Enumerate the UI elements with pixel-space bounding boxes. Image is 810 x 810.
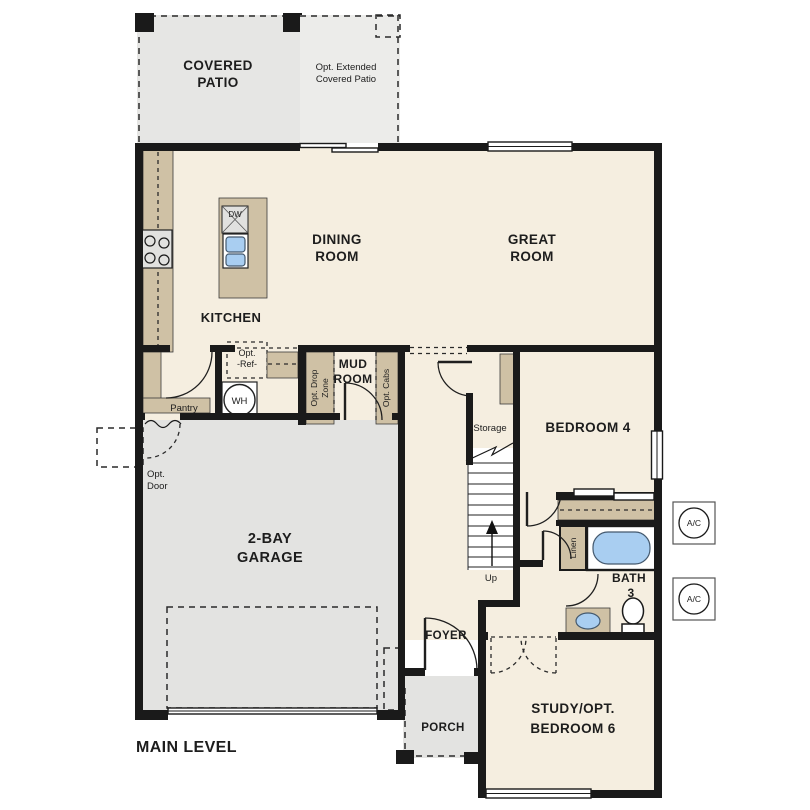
svg-text:DW: DW [228, 210, 242, 219]
svg-text:WH: WH [232, 396, 248, 407]
linen-label: Linen [568, 537, 578, 558]
garage-door [168, 708, 377, 714]
pantry-label: Pantry [170, 403, 198, 414]
storage-label: Storage [473, 423, 506, 434]
covered-patio-label: COVERED [183, 58, 253, 73]
great-room-label: GREAT [508, 232, 557, 247]
study-window [486, 789, 591, 798]
mud-room-label: MUD [339, 357, 368, 371]
stair-chase [500, 354, 514, 404]
great-room-window [488, 142, 572, 151]
opt-drop-zone-label: Zone [320, 378, 330, 398]
ac-label: A/C [687, 594, 701, 604]
porch-post [396, 750, 414, 764]
great-room-label: ROOM [510, 249, 554, 264]
main-level-title: MAIN LEVEL [136, 739, 237, 756]
opt-drop-zone-label: Opt. Drop [309, 369, 319, 406]
study-label: STUDY/OPT. [531, 701, 615, 716]
dining-room-label: ROOM [315, 249, 359, 264]
opt-door-label: Door [147, 481, 168, 492]
floor-plan-drawing: COVERED PATIO Opt. Extended Covered Pati… [0, 0, 810, 810]
water-heater-icon: WH [222, 382, 257, 418]
ac-unit-1: A/C [673, 502, 715, 544]
opt-ref-label: Opt. [238, 348, 255, 358]
extended-patio-label: Covered Patio [316, 74, 376, 85]
porch-post [464, 752, 480, 764]
ac-unit-2: A/C [673, 578, 715, 620]
drop-counter [267, 352, 298, 378]
kitchen-sink-icon [223, 234, 248, 268]
dining-room-label: DINING [312, 232, 362, 247]
porch-floor [403, 676, 479, 758]
toilet-icon [622, 598, 644, 633]
garage-label: GARAGE [237, 550, 303, 566]
extended-patio-label: Opt. Extended [316, 62, 377, 73]
stairs-up-label: Up [485, 573, 497, 584]
porch-label: PORCH [421, 722, 465, 734]
patio-post [283, 13, 302, 32]
bedroom-4-label: BEDROOM 4 [545, 420, 630, 435]
floor-plan-page: COVERED PATIO Opt. Extended Covered Pati… [0, 0, 810, 810]
dishwasher-icon: DW [222, 206, 248, 233]
vanity-icon [566, 608, 610, 634]
study-label: BEDROOM 6 [530, 721, 615, 736]
kitchen-label: KITCHEN [201, 310, 262, 325]
stair-well [467, 448, 513, 570]
covered-patio-label: PATIO [197, 75, 238, 90]
linen-closet: Linen [560, 526, 586, 570]
garage-label: 2-BAY [248, 531, 292, 547]
stove-icon [141, 230, 172, 268]
bathtub-icon [587, 526, 656, 570]
patio-post [135, 13, 154, 32]
opt-ref-label: -Ref- [237, 359, 257, 369]
covered-patio: COVERED PATIO [135, 13, 302, 143]
opt-door-label: Opt. [147, 469, 165, 480]
opt-cabs-label: Opt. Cabs [381, 369, 391, 407]
garage-floor [139, 420, 401, 714]
opt-extended-covered-patio: Opt. Extended Covered Patio [300, 15, 400, 143]
ac-label: A/C [687, 518, 701, 528]
bedroom-4-window [652, 431, 663, 479]
bath-3-label: BATH [612, 571, 646, 585]
